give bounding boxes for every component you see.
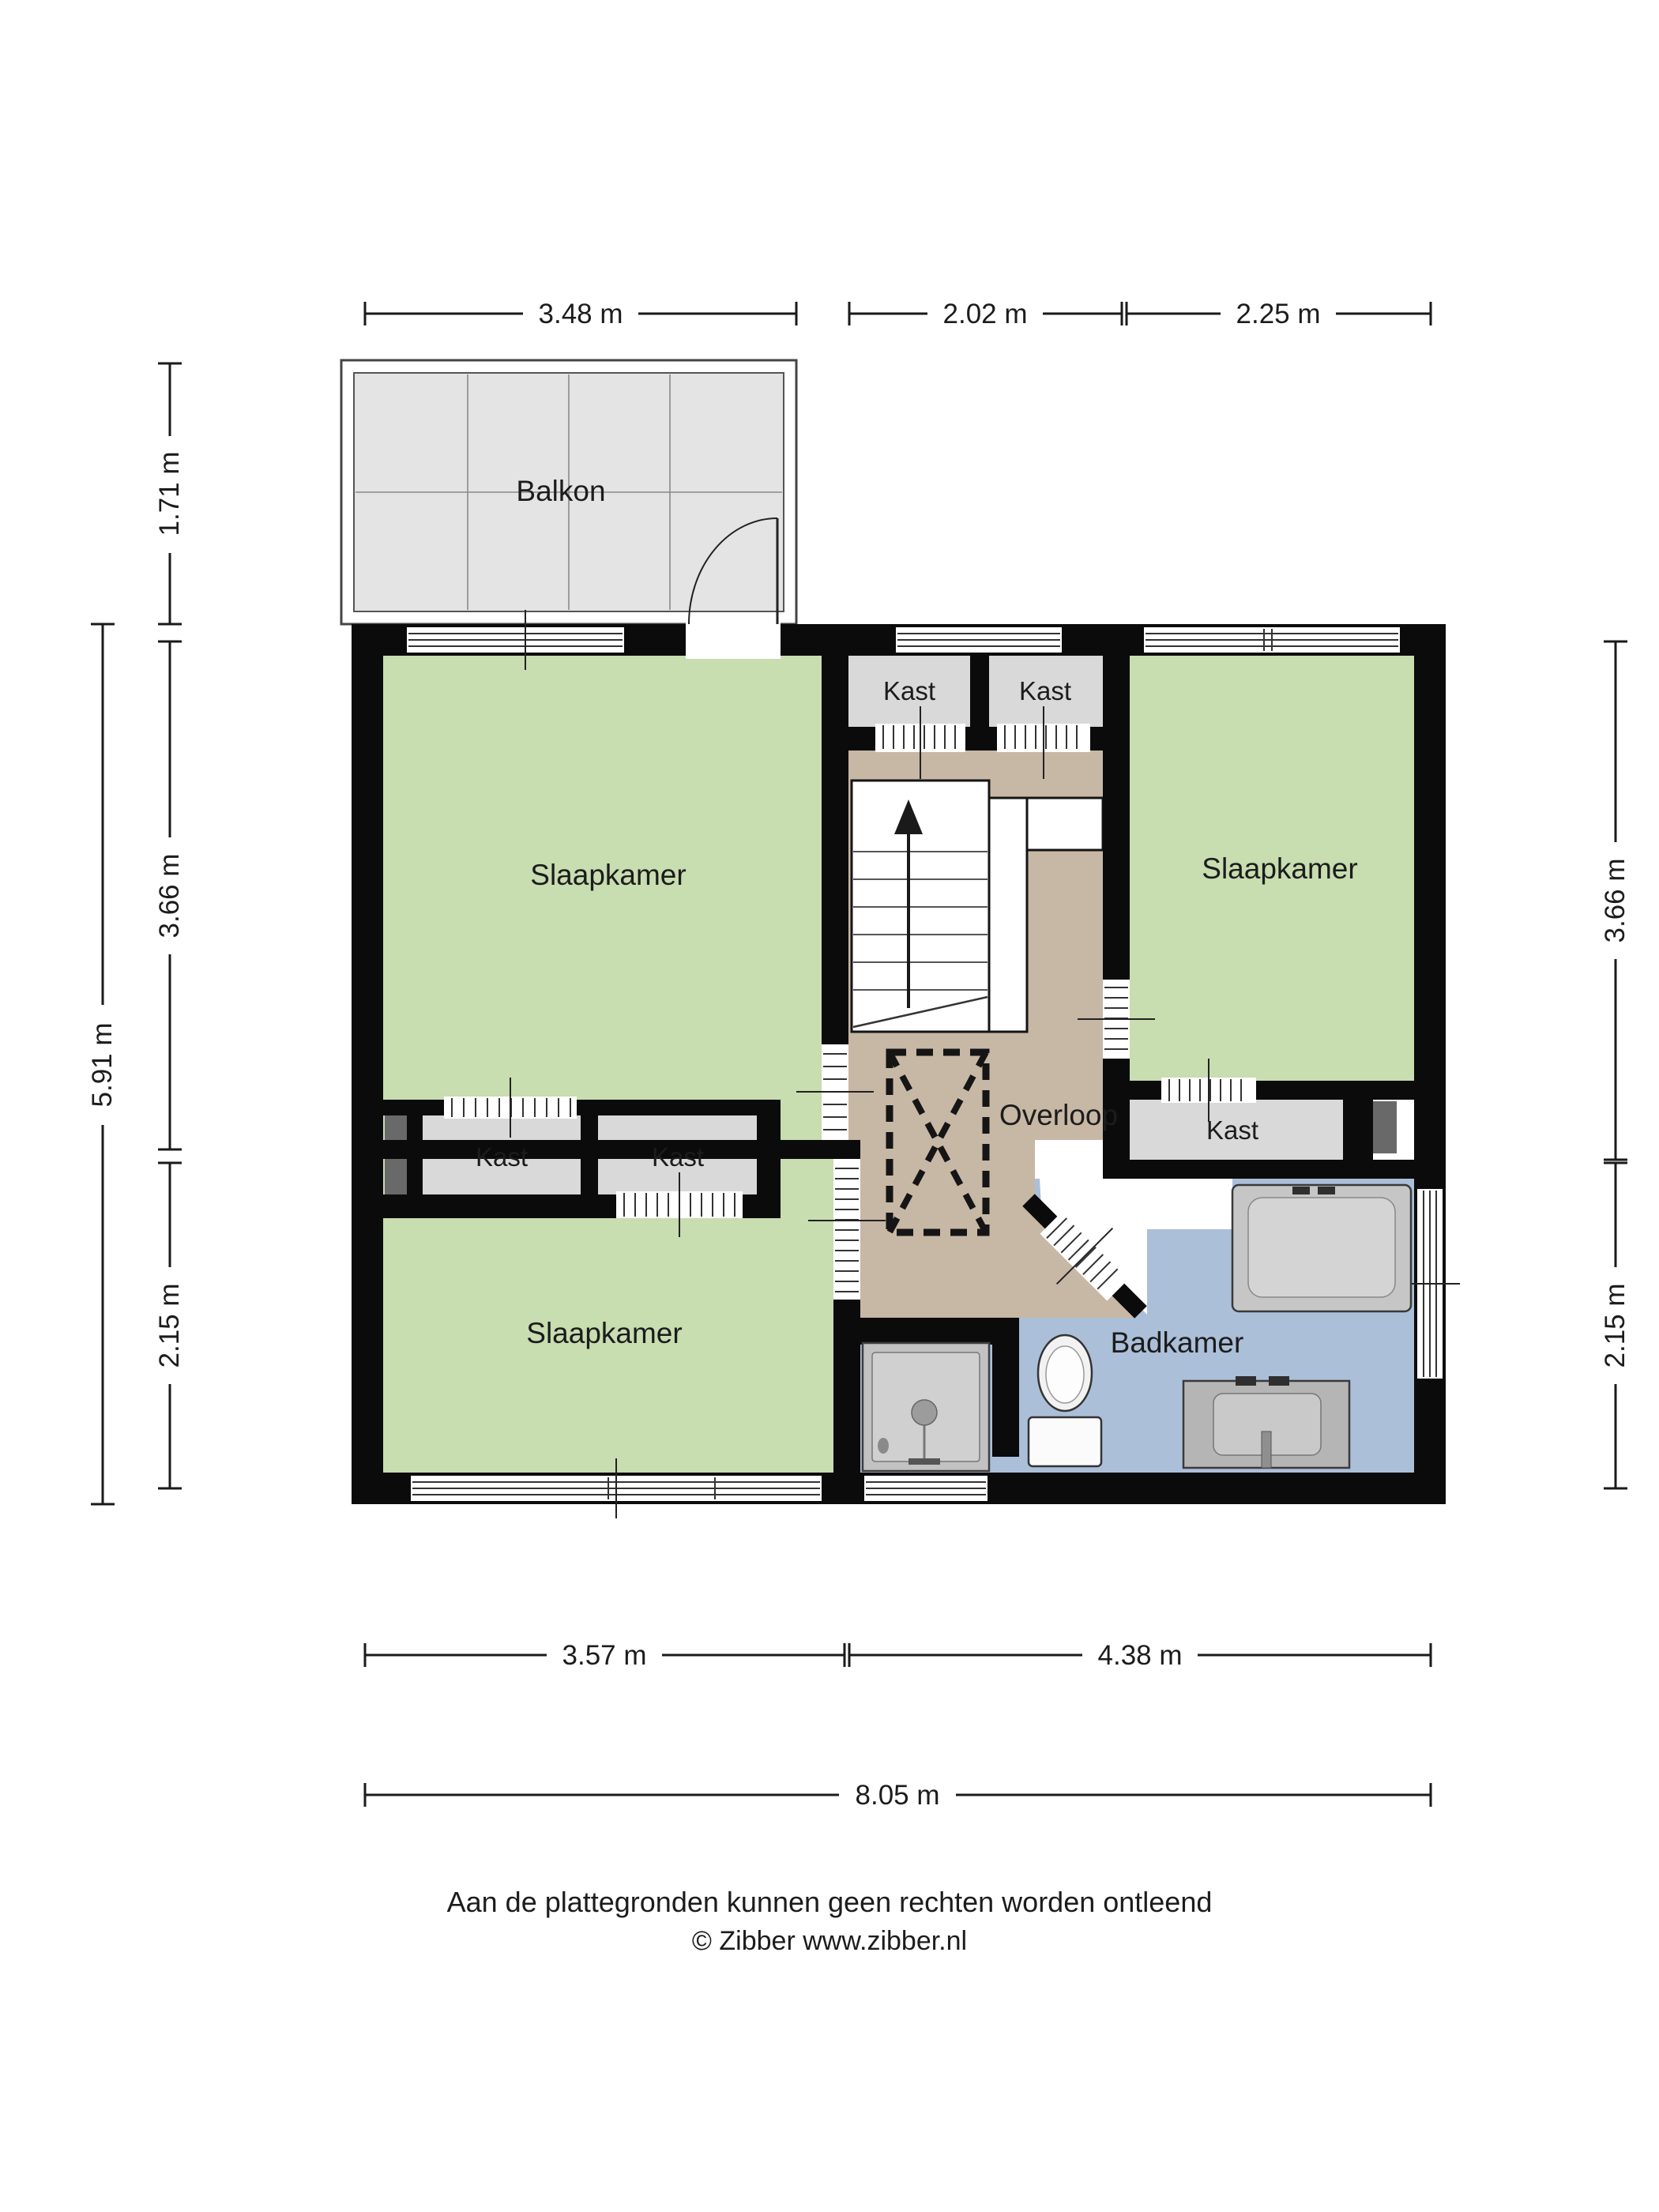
- footer-disclaimer: Aan de plattegronden kunnen geen rechten…: [447, 1886, 1213, 1918]
- dim-top-1: 3.48 m: [539, 299, 623, 329]
- dim-bottom-1: 3.57 m: [562, 1640, 647, 1671]
- dim-left-2: 3.66 m: [154, 854, 185, 939]
- dim-top-2: 2.02 m: [943, 299, 1028, 329]
- stair-landing: [1027, 798, 1103, 850]
- closet-left-2-label: Kast: [652, 1142, 704, 1172]
- bedroom-top-left-floor: [383, 656, 822, 1140]
- dim-left-1: 1.71 m: [154, 452, 185, 536]
- wall-mid-right: [1103, 1160, 1446, 1179]
- dim-bottom-2: 4.38 m: [1098, 1640, 1183, 1671]
- closet-left-1-label: Kast: [476, 1142, 528, 1172]
- dim-right-2: 2.15 m: [1600, 1284, 1631, 1368]
- stair-banister: [989, 798, 1027, 1032]
- bathtub: [1232, 1185, 1411, 1311]
- bedroom-bottom-left-label: Slaapkamer: [526, 1317, 682, 1349]
- dim-top-3: 2.25 m: [1236, 299, 1321, 329]
- shower-drain-icon: [912, 1400, 937, 1425]
- duct-shaft-right: [1373, 1101, 1397, 1153]
- dim-bottom-total: 8.05 m: [856, 1780, 940, 1811]
- floorplan-page: Balkon Slaapkamer Slaapkamer Slaapkamer …: [0, 0, 1659, 2212]
- shower: [863, 1343, 989, 1471]
- vanity-sink: [1183, 1376, 1349, 1468]
- sink-faucet-icon: [1236, 1376, 1256, 1386]
- dim-left-3: 2.15 m: [154, 1284, 185, 1368]
- bedroom-top-right-label: Slaapkamer: [1202, 852, 1357, 885]
- wall-mid-left: [352, 1140, 860, 1159]
- floorplan-canvas: Balkon Slaapkamer Slaapkamer Slaapkamer …: [0, 0, 1659, 2212]
- bedroom-top-left-label: Slaapkamer: [530, 859, 686, 891]
- bathtub-faucet-icon: [1292, 1187, 1310, 1194]
- dim-right-1: 3.66 m: [1600, 859, 1631, 943]
- toilet-tank: [1029, 1417, 1101, 1466]
- closet-right-label: Kast: [1206, 1115, 1258, 1145]
- bathroom-label: Badkamer: [1111, 1326, 1244, 1359]
- shower-faucet-icon: [908, 1458, 940, 1465]
- landing-label: Overloop: [999, 1099, 1118, 1131]
- balcony-label: Balkon: [516, 475, 605, 507]
- closet-mid-2-label: Kast: [1019, 676, 1071, 705]
- footer-credit: © Zibber www.zibber.nl: [692, 1926, 967, 1956]
- wall-left: [352, 624, 383, 1504]
- dim-left-outer: 5.91 m: [87, 1023, 118, 1108]
- closet-mid-1-label: Kast: [883, 676, 935, 705]
